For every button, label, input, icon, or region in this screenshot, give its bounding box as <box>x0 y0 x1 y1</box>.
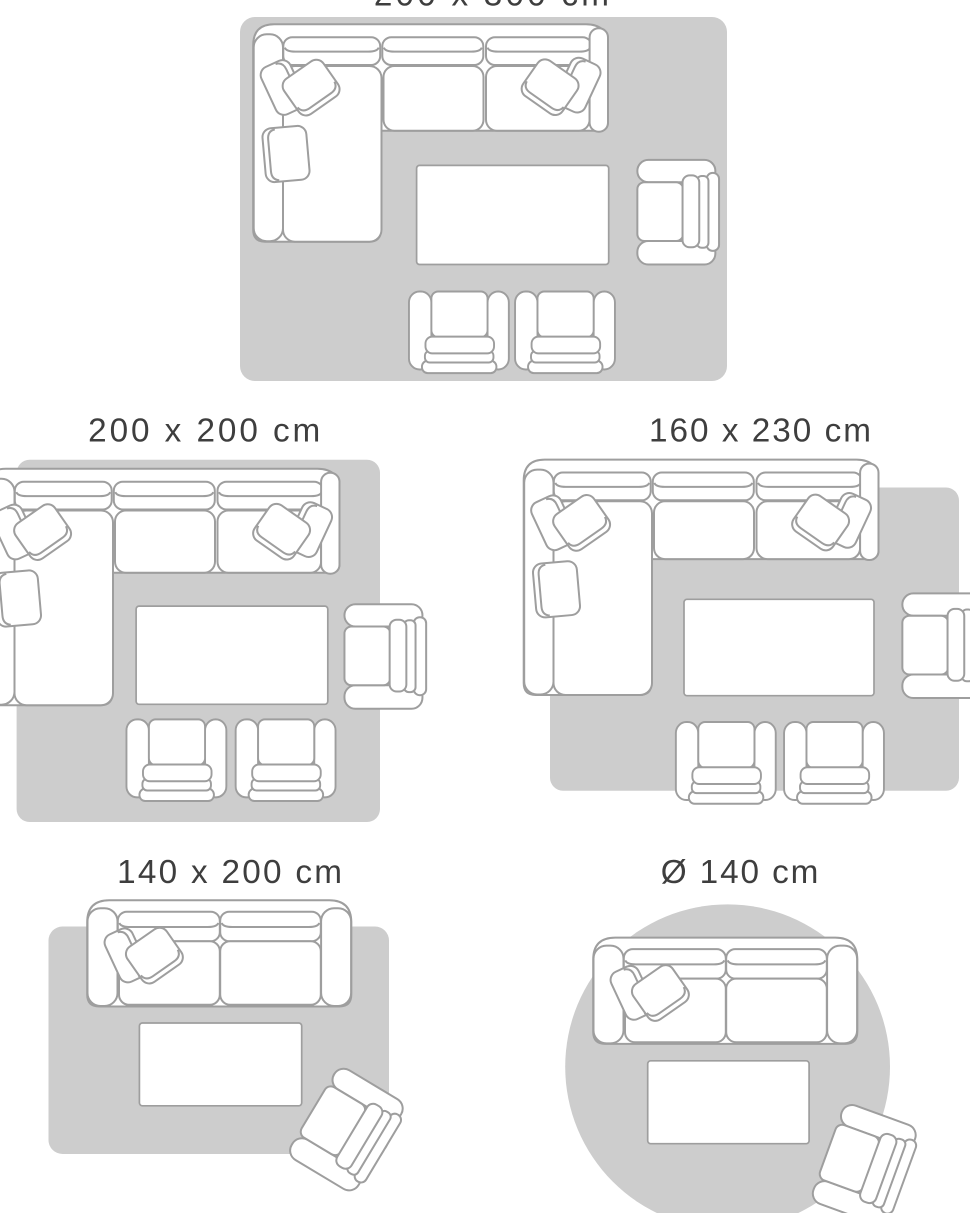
svg-text:200 x 200 cm: 200 x 200 cm <box>88 412 323 449</box>
svg-text:Ø 140 cm: Ø 140 cm <box>661 854 821 891</box>
svg-text:160 x 230 cm: 160 x 230 cm <box>649 412 873 449</box>
svg-text:200 x 300 cm: 200 x 300 cm <box>374 0 612 14</box>
svg-text:140 x 200 cm: 140 x 200 cm <box>117 854 344 891</box>
